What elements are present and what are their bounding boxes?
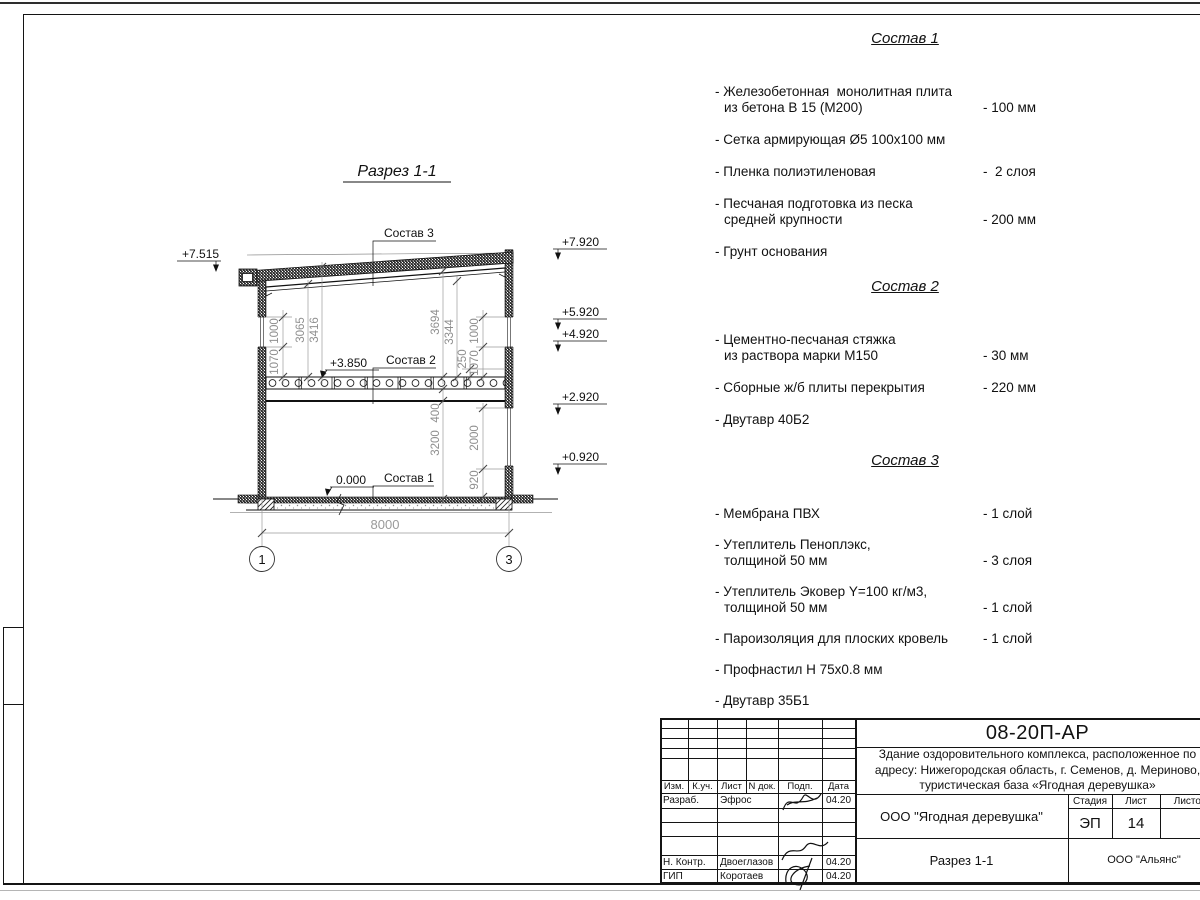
- list-item: - Мембрана ПВХ - 1 слой: [715, 506, 1095, 522]
- label-sostav-3: Состав 3: [384, 226, 434, 240]
- list-item: - Утеплитель Пеноплэкс, толщиной 50 мм -…: [715, 537, 1095, 569]
- client-organization: ООО "Ягодная деревушка": [855, 794, 1068, 838]
- window-opening: [257, 317, 266, 347]
- left-margin-table: [3, 627, 24, 884]
- stage-value: ЭП: [1068, 808, 1112, 838]
- list-item: - Сборные ж/б плиты перекрытия - 220 мм: [715, 380, 1095, 396]
- composition-1-title: Состав 1: [715, 30, 1095, 48]
- elevation-marks: +7.920 +5.920 +4.920 +2.920 +0.920: [553, 235, 607, 475]
- signature: [780, 788, 824, 816]
- dim-text: 1070: [469, 350, 481, 376]
- dim-text: 1000: [269, 318, 281, 344]
- dim-text: 400: [430, 403, 442, 422]
- list-item: - Профнастил Н 75х0.8 мм: [715, 662, 1095, 678]
- dim-text: 3200: [430, 430, 442, 456]
- date-razrab: 04.20: [822, 793, 855, 808]
- list-item: - Грунт основания: [715, 244, 1095, 260]
- list-item: - Утеплитель Эковер Y=100 кг/м3, толщино…: [715, 584, 1095, 616]
- list-item: - Двутавр 35Б1: [715, 693, 1095, 709]
- dim-text: 1000: [469, 318, 481, 344]
- list-item: - Пленка полиэтиленовая - 2 слоя: [715, 164, 1095, 180]
- col-header-izm: Изм.: [660, 780, 688, 793]
- list-item: - Пароизоляция для плоских кровель - 1 с…: [715, 631, 1095, 647]
- composition-2-title: Состав 2: [715, 278, 1095, 296]
- view-title: Разрез 1-1: [357, 163, 436, 180]
- ground-slab: [213, 494, 558, 515]
- level-mark-3850: +3.850: [330, 356, 367, 370]
- document-number: 08-20П-АР: [855, 720, 1200, 747]
- dim-text: 1070: [269, 349, 281, 375]
- roof: [239, 252, 513, 286]
- section-drawing: Разрез 1-1: [0, 0, 660, 620]
- col-header-kuch: К.уч.: [688, 780, 717, 793]
- level-mark-7515: +7.515: [182, 247, 219, 261]
- list-item: - Двутавр 40Б2: [715, 412, 1095, 428]
- col-header-list: Лист: [717, 780, 746, 793]
- axis-label-1: 1: [258, 552, 265, 567]
- stage-label: Стадия: [1068, 794, 1112, 808]
- dim-text: 920: [469, 470, 481, 489]
- name-nkontr: Двоеглазов: [717, 855, 778, 869]
- dim-text: 3065: [295, 317, 307, 343]
- dim-text: 250: [457, 349, 469, 368]
- left-margin-divider: [4, 704, 24, 705]
- window-opening: [504, 408, 513, 466]
- list-item: - Сетка армирующая Ø5 100х100 мм: [715, 132, 1095, 148]
- sheets-label: Листов: [1160, 794, 1200, 808]
- elevation-mark: +7.920: [562, 235, 599, 249]
- page-bottom-edge: [0, 890, 1200, 891]
- axis-label-3: 3: [505, 552, 512, 567]
- col-header-ndok: N док.: [746, 780, 778, 793]
- elevation-mark: +4.920: [562, 327, 599, 341]
- signature: [776, 838, 832, 890]
- col-header-data: Дата: [822, 780, 855, 793]
- level-mark-0000: 0.000: [336, 473, 366, 487]
- view-name: Разрез 1-1: [855, 838, 1068, 882]
- elevation-mark: +2.920: [562, 390, 599, 404]
- list-item: - Песчаная подготовка из песка средней к…: [715, 196, 1095, 228]
- label-sostav-2: Состав 2: [386, 353, 436, 367]
- design-company: ООО "Альянс": [1068, 838, 1200, 882]
- axis-markers: 1 3: [250, 547, 522, 572]
- role-razrab: Разраб.: [660, 793, 717, 808]
- title-block: Изм. К.уч. Лист N док. Подп. Дата Разраб…: [660, 718, 1200, 884]
- dim-text: 3344: [444, 319, 456, 345]
- name-razrab: Эфрос: [717, 793, 778, 808]
- composition-2: Состав 2 - Цементно-песчаная стяжка из р…: [715, 278, 1095, 444]
- dim-text: 2000: [469, 425, 481, 451]
- composition-1: Состав 1 - Железобетонная монолитная пли…: [715, 30, 1095, 276]
- list-item: - Железобетонная монолитная плита из бет…: [715, 84, 1095, 116]
- name-gip: Коротаев: [717, 869, 778, 883]
- dim-text: 3416: [309, 317, 321, 343]
- window-opening: [504, 317, 513, 347]
- dim-text: 3694: [430, 309, 442, 335]
- composition-3: Состав 3 - Мембрана ПВХ - 1 слой - Утепл…: [715, 452, 1095, 724]
- list-item: - Цементно-песчаная стяжка из раствора м…: [715, 332, 1095, 364]
- sheet-label: Лист: [1112, 794, 1160, 808]
- elevation-mark: +5.920: [562, 305, 599, 319]
- role-nkontr: Н. Контр.: [660, 855, 717, 869]
- composition-3-title: Состав 3: [715, 452, 1095, 470]
- dim-text-span: 8000: [371, 517, 400, 532]
- sheet-value: 14: [1112, 808, 1160, 838]
- project-description: Здание оздоровительного комплекса, распо…: [855, 747, 1200, 794]
- label-sostav-1: Состав 1: [384, 471, 434, 485]
- role-gip: ГИП: [660, 869, 717, 883]
- elevation-mark: +0.920: [562, 450, 599, 464]
- floor-slab: [266, 377, 505, 401]
